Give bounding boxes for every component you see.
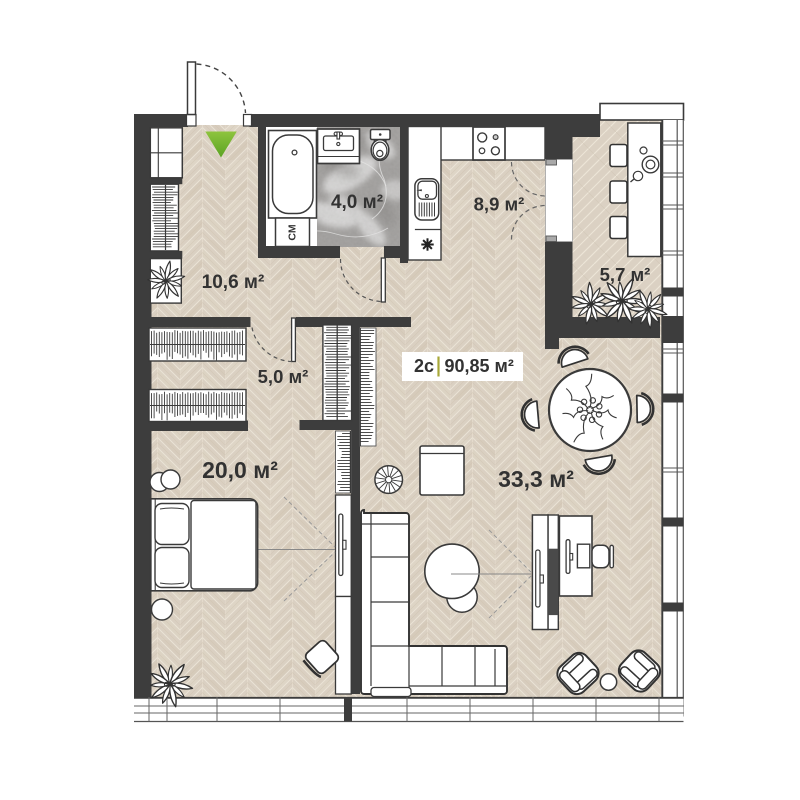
svg-text:10,6 м²: 10,6 м² <box>202 272 265 293</box>
svg-text:2с: 2с <box>414 356 434 376</box>
svg-text:5,7 м²: 5,7 м² <box>600 264 651 285</box>
svg-text:4,0 м²: 4,0 м² <box>331 192 383 213</box>
svg-text:20,0 м²: 20,0 м² <box>202 457 278 483</box>
svg-text:СМ: СМ <box>287 224 299 240</box>
svg-text:5,0 м²: 5,0 м² <box>258 366 309 387</box>
svg-text:33,3 м²: 33,3 м² <box>498 466 574 492</box>
svg-text:90,85 м²: 90,85 м² <box>445 356 514 376</box>
svg-text:8,9 м²: 8,9 м² <box>474 194 525 215</box>
